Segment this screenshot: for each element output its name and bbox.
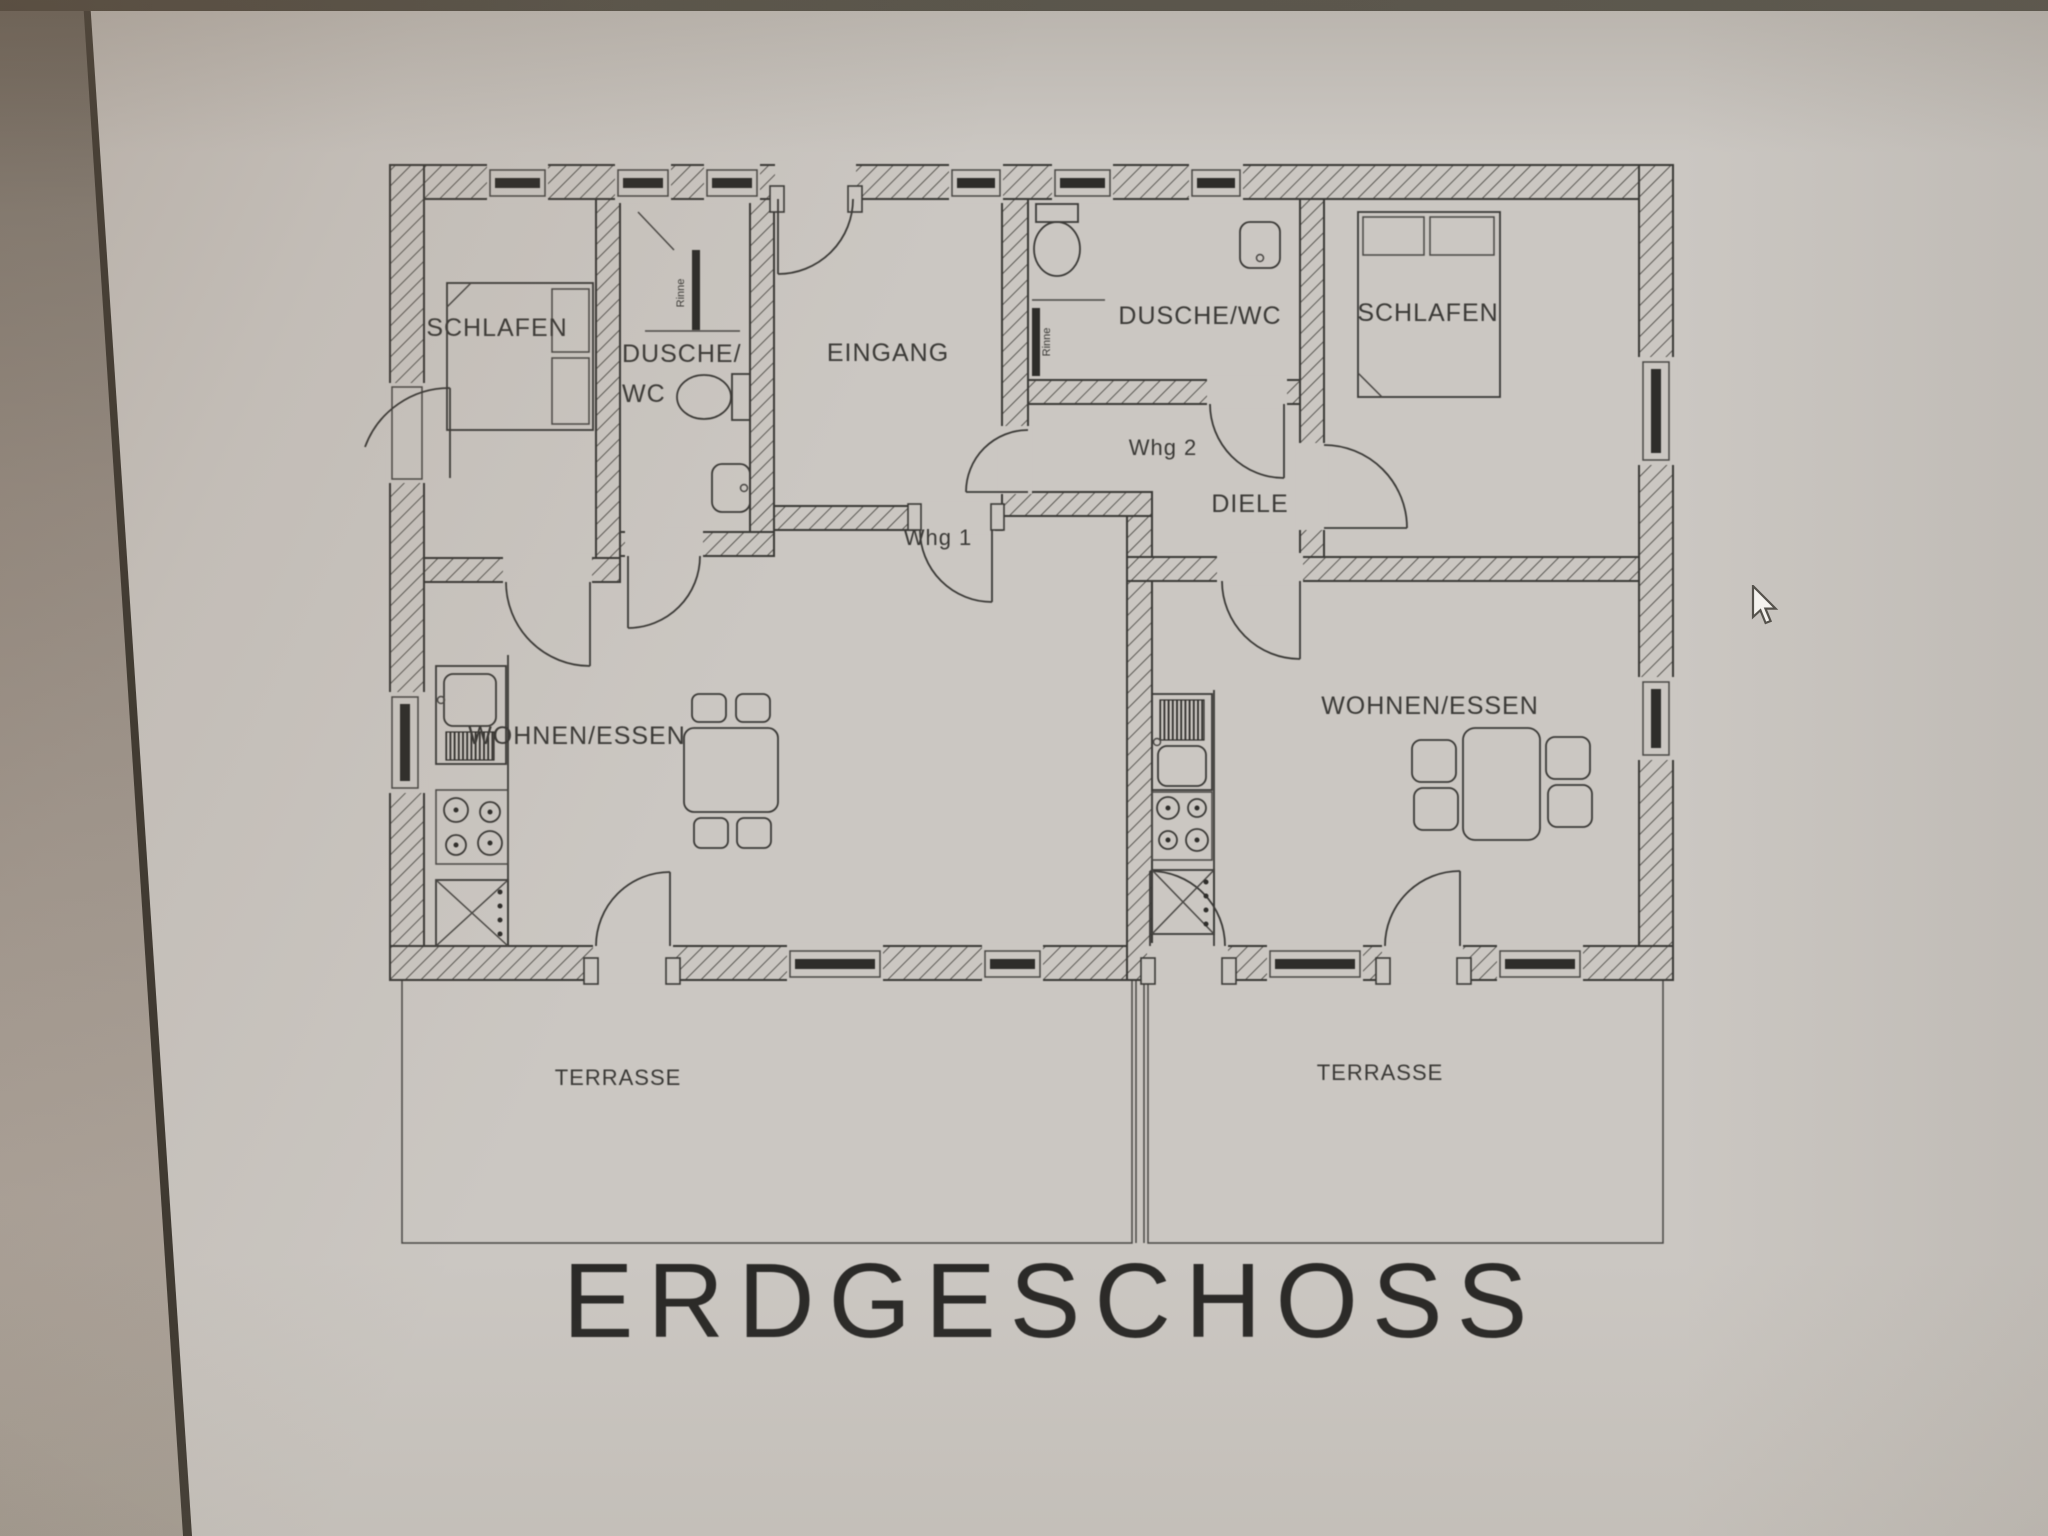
photo-top-edge — [0, 0, 2048, 11]
toilet-icon-apt1 — [677, 374, 750, 420]
terrace-divider — [1136, 980, 1144, 1243]
toilet-icon-apt2 — [1034, 204, 1080, 276]
sink-icon-apt1 — [712, 464, 750, 512]
label-dusche-apt1-line2: WC — [622, 380, 666, 408]
label-whg2: Whg 2 — [1129, 435, 1198, 460]
cabinet-icon-apt2 — [1152, 870, 1214, 934]
floor-plan: SCHLAFEN DUSCHE/ WC EINGANG Whg 1 Whg 2 … — [0, 0, 2048, 1536]
bed-symbol-apt1 — [447, 283, 593, 430]
label-rinne-apt2: Rinne — [1041, 328, 1053, 357]
cabinet-icon-apt1 — [436, 880, 508, 946]
label-wohnen-apt2: WOHNEN/ESSEN — [1321, 692, 1539, 720]
label-whg1: Whg 1 — [904, 525, 973, 550]
stove-icon-apt1 — [436, 790, 508, 864]
kitchen-apt2 — [1152, 690, 1214, 946]
label-schlafen-apt2: SCHLAFEN — [1357, 299, 1498, 327]
label-terrasse-apt1: TERRASSE — [555, 1065, 682, 1090]
dining-set-apt1 — [684, 694, 778, 848]
terrace-apt1-outline — [402, 980, 1132, 1243]
stove-icon-apt2 — [1152, 792, 1212, 860]
kitchen-sink-icon-apt2 — [1152, 694, 1212, 790]
dining-set-apt2 — [1412, 728, 1592, 840]
plan-title: ERDGESCHOSS — [563, 1242, 1542, 1360]
label-rinne-apt1: Rinne — [675, 279, 687, 308]
label-dusche-apt2: DUSCHE/WC — [1118, 302, 1281, 330]
terrace-apt2-outline — [1148, 980, 1663, 1243]
shower-drain-apt1 — [638, 212, 740, 331]
label-eingang: EINGANG — [827, 339, 949, 367]
label-schlafen-apt1: SCHLAFEN — [426, 314, 567, 342]
sink-icon-apt2 — [1240, 222, 1280, 268]
kitchen-apt1 — [436, 655, 508, 946]
mouse-cursor-icon — [1750, 585, 1784, 625]
label-dusche-apt1-line1: DUSCHE/ — [622, 340, 742, 368]
label-wohnen-apt1: WOHNEN/ESSEN — [468, 722, 686, 750]
label-diele: DIELE — [1211, 490, 1288, 518]
screen-photo: SCHLAFEN DUSCHE/ WC EINGANG Whg 1 Whg 2 … — [0, 0, 2048, 1536]
label-terrasse-apt2: TERRASSE — [1317, 1060, 1444, 1085]
